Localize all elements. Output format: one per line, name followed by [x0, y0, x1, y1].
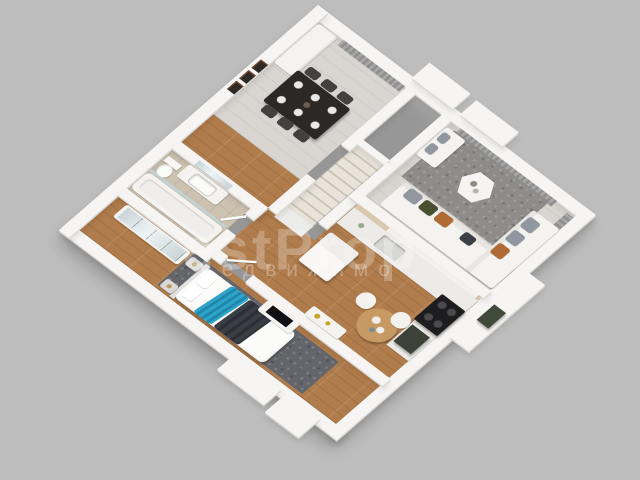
isometric-apartment-model — [59, 5, 596, 440]
floorplan-render-canvas: estProp недвижимо — [0, 0, 640, 480]
